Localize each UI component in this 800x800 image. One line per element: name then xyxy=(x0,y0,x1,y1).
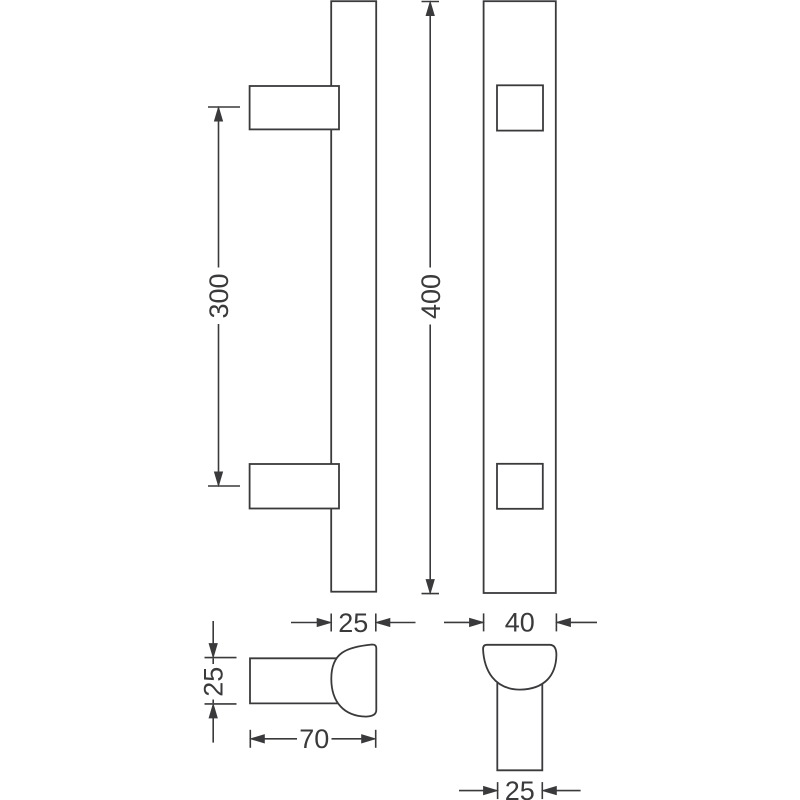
svg-text:400: 400 xyxy=(416,274,446,319)
svg-text:25: 25 xyxy=(338,608,368,638)
svg-text:70: 70 xyxy=(299,724,329,754)
svg-text:300: 300 xyxy=(204,273,234,318)
svg-text:25: 25 xyxy=(198,667,228,697)
svg-text:40: 40 xyxy=(505,608,535,638)
svg-text:25: 25 xyxy=(505,776,535,800)
